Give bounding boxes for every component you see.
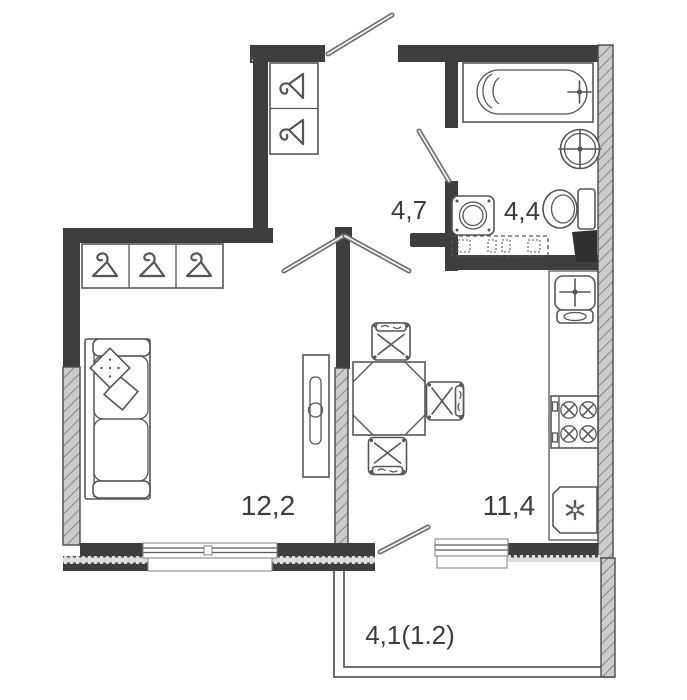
planned-cabinet-dashed <box>452 236 548 256</box>
balcony-outline <box>334 558 615 677</box>
bottom-wall-b <box>277 543 375 558</box>
left-wall-lower-hatched <box>63 367 80 545</box>
chair <box>372 323 410 360</box>
vent-duct <box>572 230 597 262</box>
chair <box>369 438 407 475</box>
sofa <box>85 339 150 499</box>
living-area-label: 12,2 <box>241 490 296 521</box>
chair <box>427 382 464 420</box>
balcony-right-wall-hatched <box>601 558 615 677</box>
balcony-door-leaf <box>380 527 428 552</box>
tv-stand <box>303 355 329 477</box>
entry-closet <box>270 63 318 154</box>
hall-stub-wall <box>410 233 452 247</box>
kitchen-sink <box>555 276 595 323</box>
bathroom-left-wall-upper <box>445 57 458 128</box>
living-top-wall <box>63 228 273 243</box>
floor-plan: 4,7 4,4 12,2 11,4 4,1(1.2) <box>0 0 687 700</box>
insulation-strip-right <box>508 555 600 562</box>
left-wall-upper <box>63 228 80 369</box>
dining-table <box>353 362 425 435</box>
stove <box>551 396 598 448</box>
kitchen-window-balcony-door <box>380 527 508 568</box>
washbasin <box>559 130 601 169</box>
bathroom-area-label: 4,4 <box>504 196 540 226</box>
bathroom-bottom-wall <box>445 255 598 270</box>
partition-wall-upper <box>336 240 350 369</box>
bathroom-top-wall <box>398 45 600 62</box>
bottom-wall-c <box>508 543 598 557</box>
kitchen-area-label: 11,4 <box>483 490 535 521</box>
fridge <box>553 487 597 533</box>
toilet <box>543 189 595 229</box>
wardrobe <box>82 244 223 288</box>
entry-side-wall <box>253 45 268 243</box>
bathtub <box>463 63 593 122</box>
right-wall-hatched <box>598 45 613 558</box>
bathroom-door-leaf <box>419 131 449 181</box>
washing-machine <box>452 196 494 235</box>
bottom-wall-a <box>80 543 143 558</box>
balcony-area-label: 4,1(1.2) <box>365 620 455 650</box>
hall-area-label: 4,7 <box>391 195 427 225</box>
partition-wall-lower-hatched <box>335 368 348 557</box>
entry-door-leaf <box>328 15 392 54</box>
window-center-mark <box>204 546 212 555</box>
living-window <box>143 543 277 571</box>
